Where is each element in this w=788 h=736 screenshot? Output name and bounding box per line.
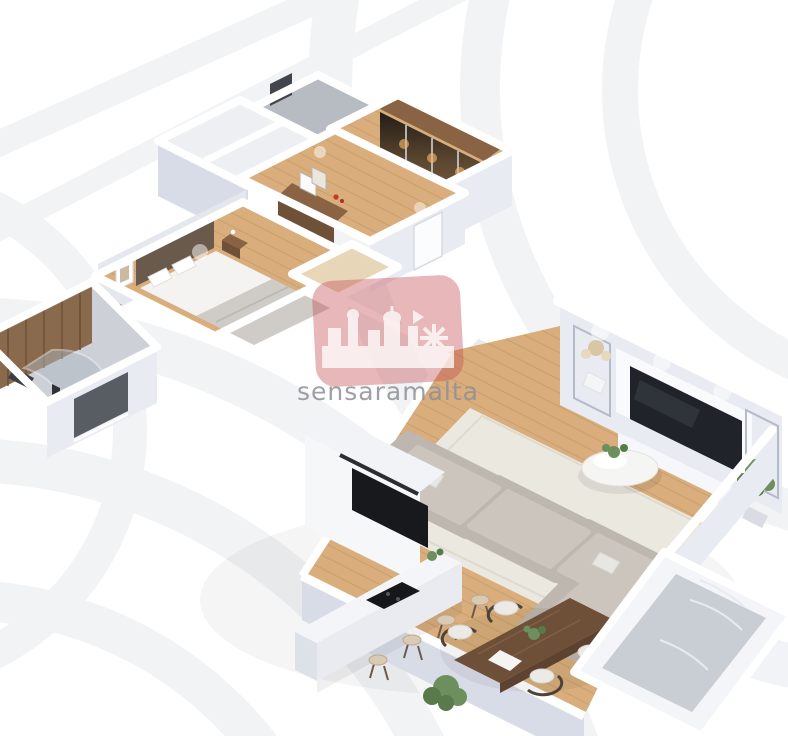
windmill-star bbox=[420, 324, 448, 352]
island-plant bbox=[427, 551, 437, 561]
malta-skyline-logo bbox=[311, 274, 464, 388]
apartment-3d-svg: sensaramalta bbox=[0, 0, 788, 736]
watermark-text: sensaramalta bbox=[297, 377, 479, 406]
red-decor bbox=[333, 194, 338, 199]
wardrobe-light bbox=[427, 153, 437, 163]
dining-chair bbox=[530, 669, 554, 683]
bedside-lamp bbox=[231, 230, 235, 234]
wardrobe-light bbox=[399, 139, 409, 149]
dining-chair bbox=[448, 625, 472, 639]
dining-chair bbox=[494, 601, 518, 615]
watermark: sensaramalta bbox=[297, 274, 479, 406]
red-decor bbox=[340, 199, 344, 203]
spotlight-glow bbox=[314, 146, 326, 158]
spotlight-glow bbox=[414, 202, 426, 214]
floorplan-render: sensaramalta bbox=[0, 0, 788, 736]
spotlight-glow bbox=[192, 244, 208, 260]
